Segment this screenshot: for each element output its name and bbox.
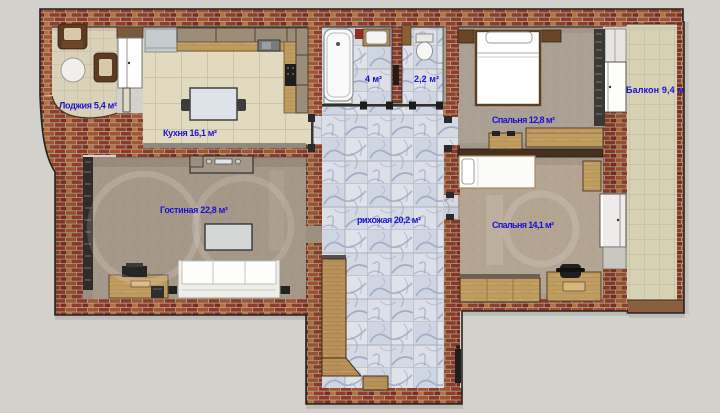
svg-text:Кухня 16,1 м²: Кухня 16,1 м² <box>163 128 217 138</box>
svg-text:Лоджия 5,4 м²: Лоджия 5,4 м² <box>59 101 117 111</box>
svg-text:Спальня 12,8 м²: Спальня 12,8 м² <box>492 115 555 125</box>
svg-text:Гостиная 22,8 м²: Гостиная 22,8 м² <box>160 205 228 215</box>
svg-text:Спальня 14,1 м²: Спальня 14,1 м² <box>492 220 554 230</box>
svg-text:Балкон 9,4 м: Балкон 9,4 м <box>626 85 684 95</box>
svg-text:4 м²: 4 м² <box>365 74 382 84</box>
svg-text:2,2 м²: 2,2 м² <box>414 74 439 84</box>
svg-text:рихожая 20,2 м²: рихожая 20,2 м² <box>357 215 421 225</box>
